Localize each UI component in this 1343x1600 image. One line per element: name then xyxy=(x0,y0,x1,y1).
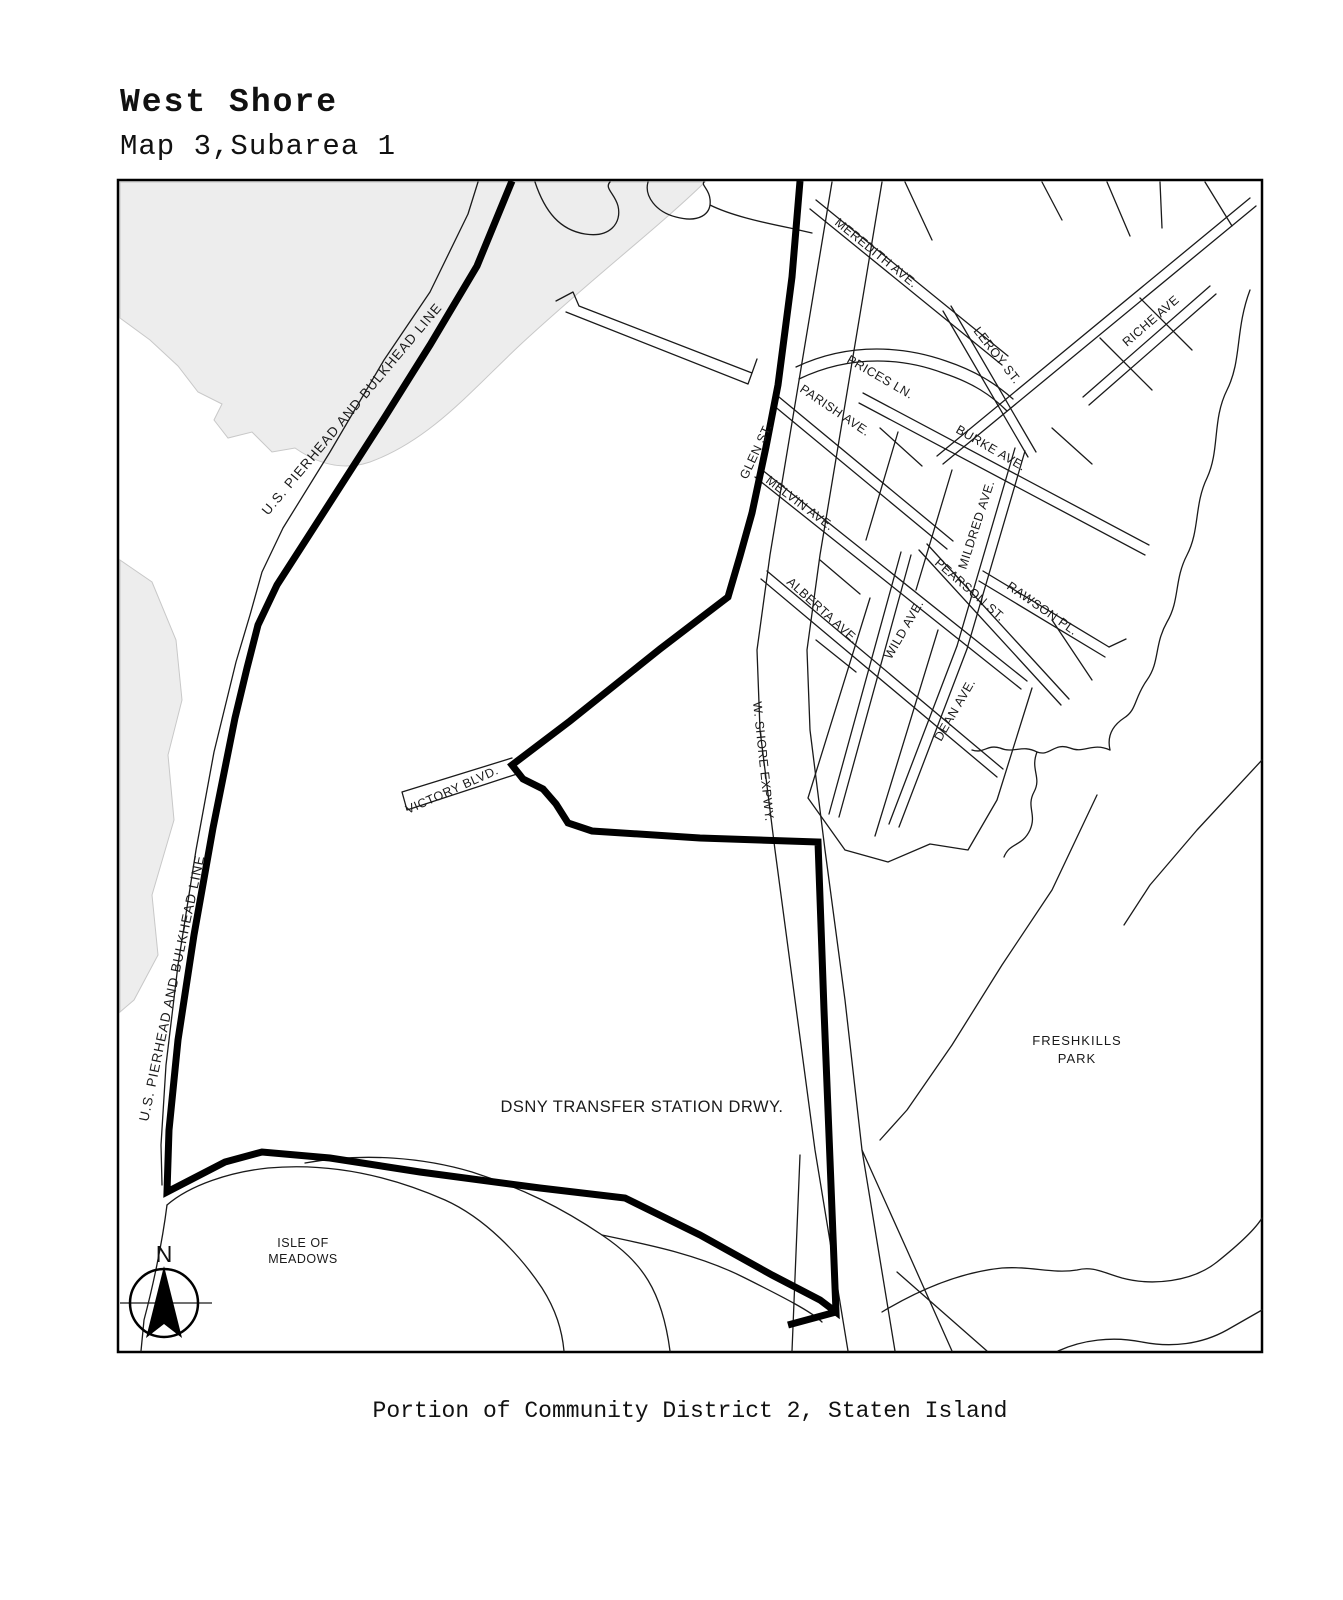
freshkills-park-label-line2: PARK xyxy=(1058,1051,1096,1066)
dsny-transfer-station-label: DSNY TRANSFER STATION DRWY. xyxy=(500,1098,783,1116)
compass-north-label: N xyxy=(156,1241,173,1267)
map-caption: Portion of Community District 2, Staten … xyxy=(118,1398,1262,1424)
isle-of-meadows-label-line1: ISLE OF xyxy=(277,1236,328,1250)
isle-of-meadows-label-line2: MEADOWS xyxy=(268,1252,337,1266)
map-canvas: N U.S. PIERHEAD AND BULKHEAD LINE U.S. P… xyxy=(0,0,1343,1600)
freshkills-park-label-line1: FRESHKILLS xyxy=(1032,1033,1121,1048)
map-sheet: West Shore Map 3,Subarea 1 xyxy=(0,0,1343,1600)
